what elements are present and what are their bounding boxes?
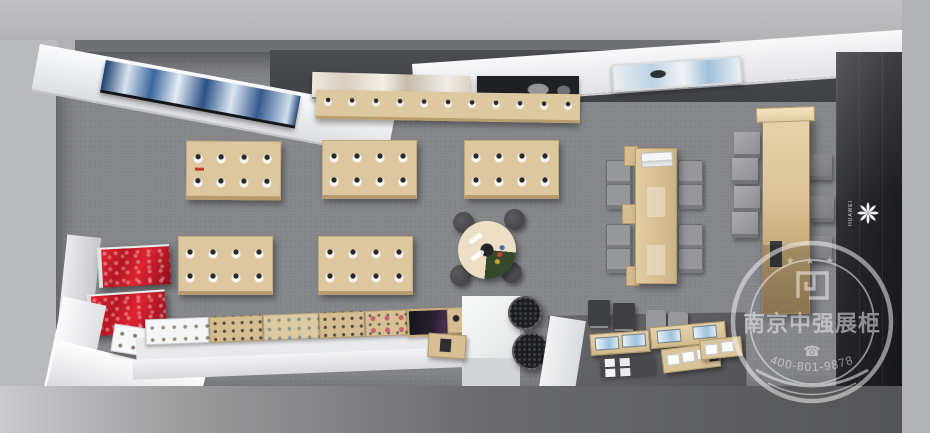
table-inlay <box>647 245 665 275</box>
wall-display-box <box>810 196 834 222</box>
product-box <box>720 341 734 353</box>
demo-screen <box>657 329 682 344</box>
wall-product-bar <box>316 90 580 124</box>
accessory-tray <box>319 311 366 339</box>
product-display-table <box>318 236 413 295</box>
conference-chair <box>678 160 703 185</box>
wall-display-box <box>808 236 832 262</box>
showroom-render: HUAWEI ★ ★ ★ 南京中强展柜 <box>0 0 930 433</box>
product-display-table <box>178 236 273 295</box>
brand-logo: HUAWEI <box>848 190 882 236</box>
huawei-flower-icon <box>856 201 880 225</box>
dark-chair <box>613 303 635 329</box>
accessory-tray <box>145 317 210 345</box>
conference-chair <box>606 224 631 249</box>
tall-display-cabinet <box>762 114 810 314</box>
accessory-tray <box>209 315 264 343</box>
product-display-table <box>186 141 282 201</box>
cabinet-shade <box>763 245 809 313</box>
potted-plant <box>508 296 542 330</box>
round-demo-table <box>458 221 516 279</box>
product-box <box>666 353 680 366</box>
exterior-right-band <box>902 0 930 433</box>
product-box <box>705 343 719 355</box>
product-box <box>681 351 695 364</box>
red-price-tag <box>195 168 204 171</box>
red-lightbox-display <box>97 244 171 288</box>
product-display-table <box>322 140 417 199</box>
demo-screen <box>692 325 717 340</box>
experience-counter <box>589 330 650 356</box>
conference-chair <box>678 184 703 209</box>
dark-chair <box>588 300 610 326</box>
conference-table <box>635 148 677 284</box>
white-pedestal-front <box>462 358 520 388</box>
floor-display-item <box>427 333 467 360</box>
wall-display-box <box>734 132 760 158</box>
demo-screen <box>595 336 620 351</box>
demo-screen <box>621 333 646 348</box>
conference-chair <box>678 224 703 249</box>
cabinet-top-lid <box>756 106 815 123</box>
laptop-on-table <box>641 151 674 168</box>
conference-chair <box>678 248 703 273</box>
product-on-table <box>468 232 483 245</box>
accessory-tray <box>263 313 320 341</box>
accessory-tray <box>365 309 408 337</box>
tile-sample-mat <box>600 355 655 378</box>
exterior-bottom-band <box>0 386 930 433</box>
wall-display-box <box>732 212 758 238</box>
table-inlay <box>647 187 665 217</box>
wall-display-box <box>808 154 832 180</box>
round-stool <box>504 209 525 230</box>
wall-display-box <box>734 186 760 212</box>
wall-display-box <box>732 158 758 184</box>
brand-logo-text: HUAWEI <box>848 200 854 226</box>
product-on-table <box>470 249 485 262</box>
product-display-table <box>464 140 559 199</box>
table-end-panel <box>622 204 636 224</box>
